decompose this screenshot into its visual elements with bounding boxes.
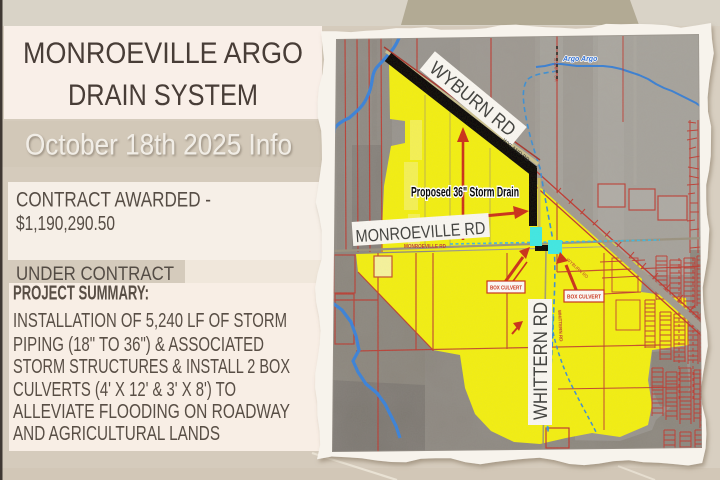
svg-text:DRAIN SYSTEM: DRAIN SYSTEM bbox=[68, 79, 258, 112]
svg-text:PIPING (18" TO 36") & ASSOCIAT: PIPING (18" TO 36") & ASSOCIATED bbox=[13, 334, 264, 356]
svg-text:$1,190,290.50: $1,190,290.50 bbox=[16, 212, 115, 235]
svg-text:AND AGRICULTURAL LANDS: AND AGRICULTURAL LANDS bbox=[13, 423, 220, 445]
svg-text:CULVERTS (4' X 12' & 3' X 8'): CULVERTS (4' X 12' & 3' X 8') TO bbox=[13, 379, 236, 401]
svg-text:October 18th 2025 Info: October 18th 2025 Info bbox=[25, 129, 292, 162]
svg-text:CONTRACT AWARDED -: CONTRACT AWARDED - bbox=[16, 189, 211, 212]
svg-text:STORM STRUCTURES & INSTALL 2 B: STORM STRUCTURES & INSTALL 2 BOX bbox=[13, 356, 290, 378]
svg-text:INSTALLATION OF 5,240 LF OF ST: INSTALLATION OF 5,240 LF OF STORM bbox=[13, 310, 287, 332]
svg-text:ALLEVIATE FLOODING ON ROADWAY: ALLEVIATE FLOODING ON ROADWAY bbox=[13, 401, 290, 423]
svg-text:MONROEVILLE ARGO: MONROEVILLE ARGO bbox=[23, 37, 303, 70]
svg-text:PROJECT SUMMARY:: PROJECT SUMMARY: bbox=[13, 282, 149, 305]
